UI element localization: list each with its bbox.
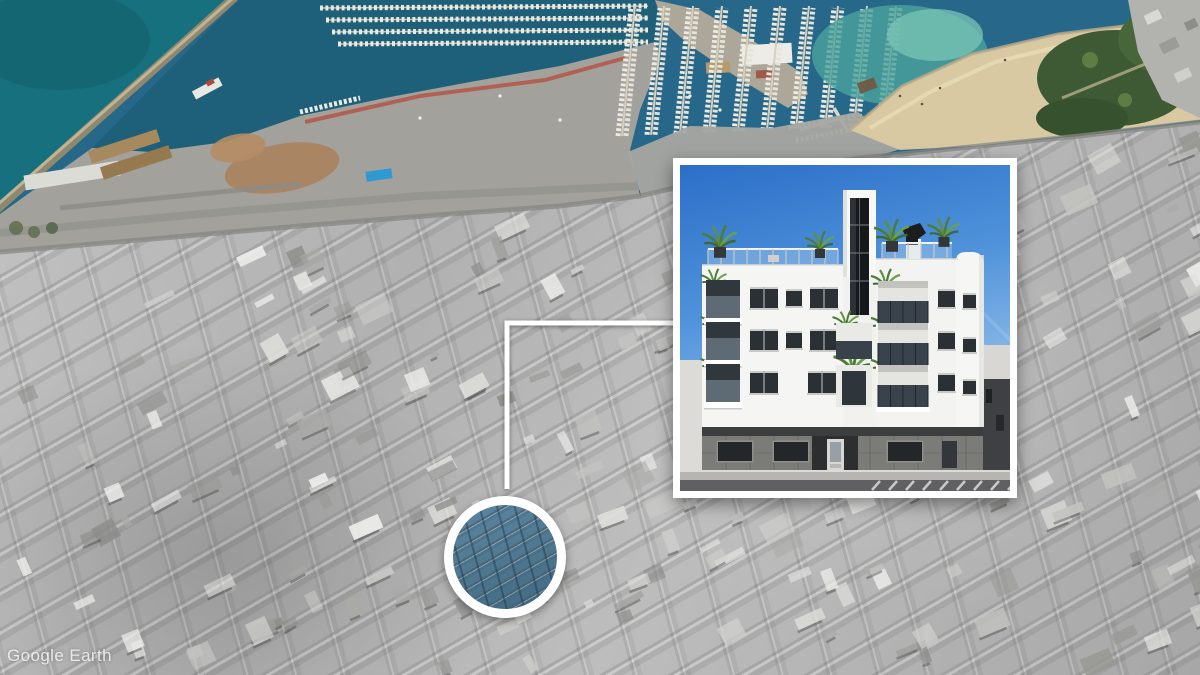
location-marker-circle (444, 496, 566, 618)
right-neighbor (983, 345, 1010, 470)
service-door (942, 441, 957, 468)
building-render-inset (673, 158, 1017, 498)
left-neighbor-wall (680, 360, 702, 480)
roof-vent-box (768, 255, 779, 262)
tower-shade (843, 190, 847, 277)
curb-line (680, 470, 1010, 472)
entrance (812, 436, 858, 470)
center-entry-floor1 (836, 365, 872, 407)
apartment-building-render (680, 165, 1010, 491)
glazing-reflection (850, 198, 856, 315)
center-balcony-floor2 (836, 323, 872, 359)
aerial-composite-image: Google Earth (0, 0, 1200, 675)
fascia-band (702, 427, 983, 436)
curved-tower-shade (979, 255, 984, 427)
callout-connector (0, 0, 1200, 675)
google-earth-watermark: Google Earth (7, 646, 112, 666)
